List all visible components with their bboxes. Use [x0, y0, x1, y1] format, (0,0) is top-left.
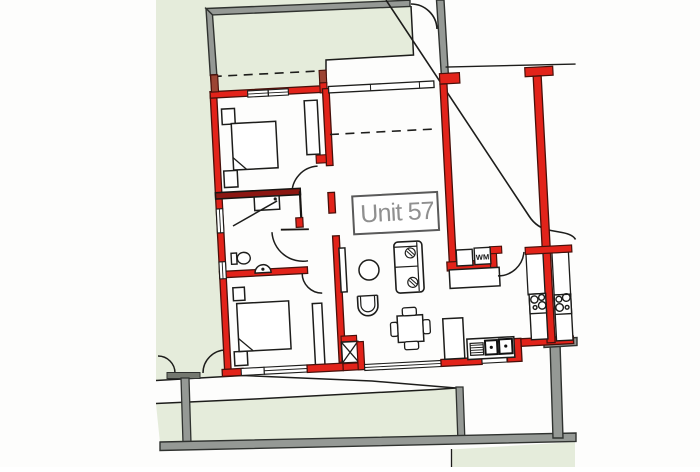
svg-text:WM: WM — [476, 252, 490, 262]
svg-text:Unit 57: Unit 57 — [360, 197, 435, 229]
